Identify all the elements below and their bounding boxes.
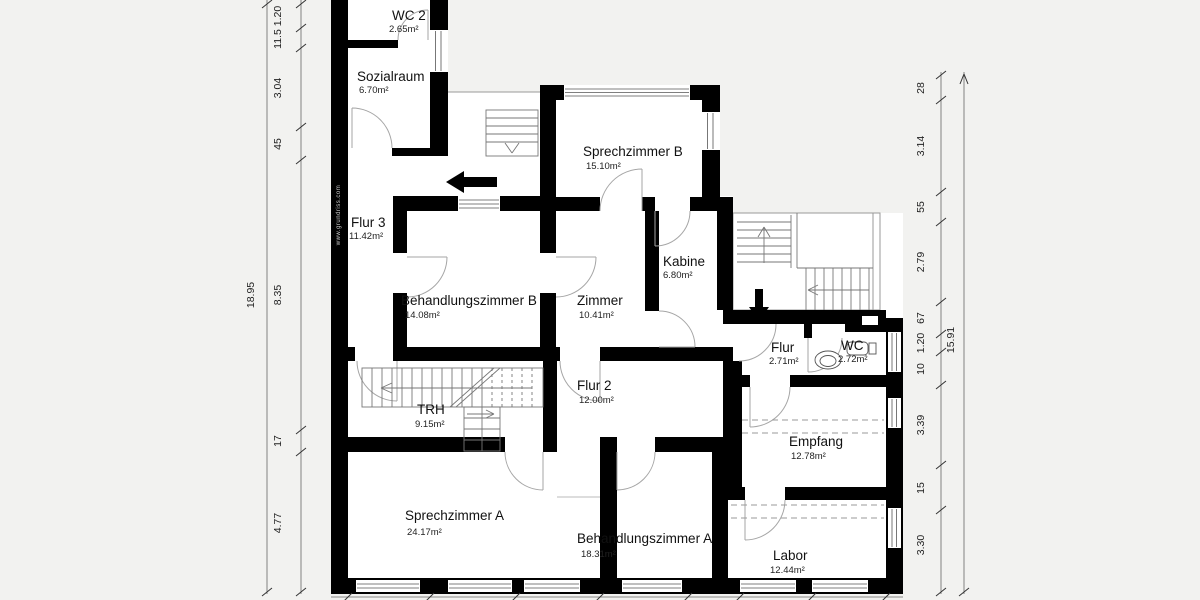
room-area: 15.10m² <box>586 161 621 172</box>
window <box>356 580 420 592</box>
wall <box>395 347 560 361</box>
dim-label: 3.04 <box>272 78 284 99</box>
wall <box>540 211 556 253</box>
room-area: 18.31m² <box>581 549 616 560</box>
wall <box>645 347 733 361</box>
wall <box>348 40 398 48</box>
dim-label: 2.79 <box>915 252 927 273</box>
room-name: Sprechzimmer A <box>405 508 504 523</box>
room-name: TRH <box>417 402 445 417</box>
wall <box>393 211 407 253</box>
room-area: 12.78m² <box>791 451 826 462</box>
wall <box>331 437 505 452</box>
dim-labels-right: 28 3.14 55 2.79 67 1.20 10 3.39 15 3.30 … <box>915 82 957 555</box>
window <box>888 332 901 372</box>
room-area: 9.15m² <box>415 419 445 430</box>
window <box>622 580 682 592</box>
window <box>448 580 512 592</box>
room-area: 12.00m² <box>579 395 614 406</box>
wall <box>785 487 886 500</box>
window <box>430 30 448 72</box>
room-area: 2.65m² <box>389 24 419 35</box>
dim-label: 3.14 <box>915 136 927 157</box>
wall <box>717 211 733 310</box>
wall <box>600 502 617 594</box>
room-area: 6.80m² <box>663 270 693 281</box>
dim-label: 28 <box>915 82 927 94</box>
room-name: Flur <box>771 340 795 355</box>
dim-label: 11.5 <box>272 29 284 49</box>
wall <box>739 375 750 387</box>
wall <box>702 100 720 112</box>
dim-label: 8.35 <box>272 285 284 306</box>
sink-basin-icon <box>820 356 836 367</box>
dim-label: 67 <box>915 312 927 324</box>
floorplan-canvas: 1.20 11.5 3.04 45 8.35 17 4.77 18.95 28 … <box>0 0 1200 600</box>
room-flur: Flur 2.71m² <box>769 340 799 367</box>
window <box>888 508 901 548</box>
window <box>702 112 720 150</box>
room-name: Flur 2 <box>577 378 612 393</box>
room-trh: TRH 9.15m² <box>415 402 445 430</box>
wall <box>430 0 448 30</box>
window <box>524 580 580 592</box>
room-name: Zimmer <box>577 293 623 308</box>
window <box>888 398 901 428</box>
dim-labels-left: 1.20 11.5 3.04 45 8.35 17 4.77 18.95 <box>245 6 284 534</box>
dim-label: 17 <box>272 435 284 447</box>
wall <box>723 487 745 500</box>
room-name: Sprechzimmer B <box>583 144 683 159</box>
wall <box>348 347 355 361</box>
dim-label: 45 <box>272 138 284 150</box>
shaft-opening <box>862 316 878 325</box>
room-wc: WC 2.72m² <box>838 338 868 365</box>
room-area: 10.41m² <box>579 310 614 321</box>
wall <box>543 361 557 452</box>
room-name: Behandlungszimmer A <box>577 531 712 546</box>
wall <box>556 197 600 211</box>
dim-label: 55 <box>915 201 927 213</box>
wall <box>430 72 448 150</box>
room-area: 11.42m² <box>349 231 383 242</box>
dim-overall-label: 18.95 <box>245 282 257 308</box>
room-name: WC <box>841 338 864 353</box>
room-area: 6.70m² <box>359 85 389 96</box>
wall <box>642 197 655 211</box>
room-area: 12.44m² <box>770 565 805 576</box>
wall <box>331 0 348 594</box>
wall <box>600 347 645 361</box>
window <box>458 196 500 211</box>
room-name: Behandlungszimmer B <box>401 293 537 308</box>
window <box>564 85 690 100</box>
wall <box>540 100 556 211</box>
room-area: 14.08m² <box>405 310 440 321</box>
room-name: Flur 3 <box>351 215 386 230</box>
wall <box>645 211 659 311</box>
dim-label: 15 <box>915 482 927 494</box>
floorplan-drawing: 1.20 11.5 3.04 45 8.35 17 4.77 18.95 28 … <box>0 0 1200 600</box>
wall <box>790 375 886 387</box>
toilet-tank-icon <box>869 343 876 354</box>
room-area: 24.17m² <box>407 527 442 538</box>
wall <box>600 437 617 502</box>
window <box>812 580 868 592</box>
dim-label: 3.30 <box>915 535 927 556</box>
watermark-text: www.grundriss.com <box>336 185 342 247</box>
dim-label: 10 <box>915 363 927 375</box>
room-name: Kabine <box>663 254 705 269</box>
room-labor: Labor 12.44m² <box>770 548 808 576</box>
room-name: Empfang <box>789 434 843 449</box>
room-area: 2.71m² <box>769 356 799 367</box>
wall <box>690 197 733 211</box>
room-name: Sozialraum <box>357 69 425 84</box>
wall <box>804 324 812 338</box>
dim-overall-label: 15.91 <box>945 327 957 353</box>
room-flur-3: Flur 3 11.42m² <box>349 215 386 242</box>
room-name: WC 2 <box>392 8 426 23</box>
room-area: 2.72m² <box>838 354 868 365</box>
wall <box>393 196 458 211</box>
dim-label: 4.77 <box>272 513 284 534</box>
wall <box>540 293 556 347</box>
dim-label: 1.20 <box>915 333 927 354</box>
dim-label: 3.39 <box>915 415 927 436</box>
room-name: Labor <box>773 548 808 563</box>
window <box>740 580 796 592</box>
dim-label: 1.20 <box>272 6 284 27</box>
wall <box>392 148 448 156</box>
room-flur-2: Flur 2 12.00m² <box>577 378 614 406</box>
